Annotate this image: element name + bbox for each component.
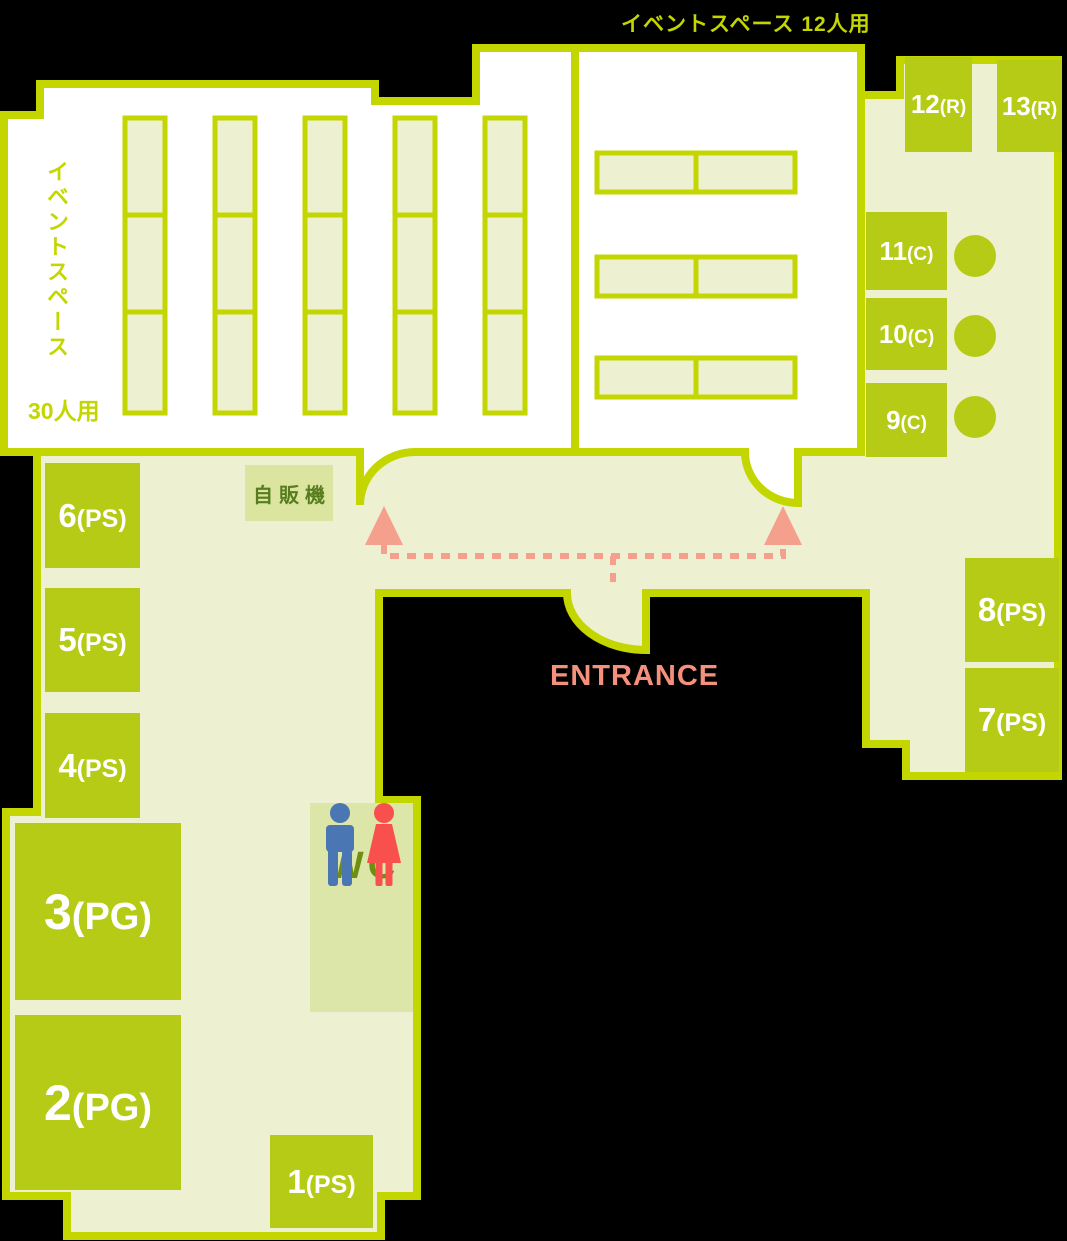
room-9C[interactable]: 9(C) bbox=[866, 383, 947, 457]
room-suffix: (PG) bbox=[72, 896, 152, 938]
vending-machine: 自販機 bbox=[245, 465, 333, 521]
room-suffix: (C) bbox=[908, 327, 934, 348]
tables-12-room bbox=[597, 153, 795, 397]
room-1PS[interactable]: 1(PS) bbox=[270, 1135, 373, 1228]
room-suffix: (C) bbox=[901, 413, 927, 434]
room-6PS[interactable]: 6(PS) bbox=[45, 463, 140, 568]
room-number: 8 bbox=[978, 591, 996, 628]
room-number: 6 bbox=[58, 497, 76, 534]
room-10C[interactable]: 10(C) bbox=[866, 298, 947, 370]
restroom-icons bbox=[310, 803, 413, 923]
room-number: 2 bbox=[44, 1075, 72, 1131]
room-number: 13 bbox=[1002, 91, 1031, 121]
room-suffix: (R) bbox=[940, 97, 966, 118]
stool-circle bbox=[954, 235, 996, 277]
room-suffix: (PS) bbox=[996, 709, 1046, 737]
man-icon bbox=[326, 803, 354, 886]
event-space-30-label: イベントスペース bbox=[40, 160, 72, 360]
room-number: 3 bbox=[44, 884, 72, 940]
room-number: 9 bbox=[886, 405, 900, 435]
room-suffix: (PS) bbox=[77, 755, 127, 783]
room-suffix: (PS) bbox=[77, 629, 127, 657]
map-title: イベントスペース 12人用 bbox=[621, 8, 871, 38]
room-4PS[interactable]: 4(PS) bbox=[45, 713, 140, 818]
room-number: 5 bbox=[58, 621, 76, 658]
vending-machine-label: 自販機 bbox=[253, 479, 331, 508]
room-suffix: (R) bbox=[1031, 99, 1057, 120]
room-suffix: (PG) bbox=[72, 1087, 152, 1129]
room-3PG[interactable]: 3(PG) bbox=[15, 823, 181, 1000]
wc-block: WC bbox=[310, 803, 413, 1012]
room-11C[interactable]: 11(C) bbox=[866, 212, 947, 290]
room-number: 10 bbox=[879, 319, 908, 349]
room-suffix: (C) bbox=[907, 244, 933, 265]
room-number: 4 bbox=[58, 747, 76, 784]
room-13R[interactable]: 13(R) bbox=[997, 60, 1062, 152]
stool-circle bbox=[954, 315, 996, 357]
room-7PS[interactable]: 7(PS) bbox=[965, 668, 1059, 772]
entrance-label: ENTRANCE bbox=[550, 660, 719, 693]
room-12R[interactable]: 12(R) bbox=[905, 57, 972, 152]
room-number: 11 bbox=[880, 236, 908, 266]
room-number: 7 bbox=[978, 701, 996, 738]
floor-map: イベントスペース 12人用 イベントスペース 30人用 ENTRANCE 12(… bbox=[0, 0, 1067, 1241]
event-space-30-capacity: 30人用 bbox=[28, 392, 100, 426]
room-5PS[interactable]: 5(PS) bbox=[45, 588, 140, 692]
room-suffix: (PS) bbox=[306, 1171, 356, 1199]
room-suffix: (PS) bbox=[996, 599, 1046, 627]
room-8PS[interactable]: 8(PS) bbox=[965, 558, 1059, 662]
stool-circle bbox=[954, 396, 996, 438]
room-number: 1 bbox=[287, 1163, 305, 1200]
room-suffix: (PS) bbox=[77, 505, 127, 533]
room-number: 12 bbox=[911, 89, 940, 119]
woman-icon bbox=[367, 803, 401, 886]
room-2PG[interactable]: 2(PG) bbox=[15, 1015, 181, 1190]
